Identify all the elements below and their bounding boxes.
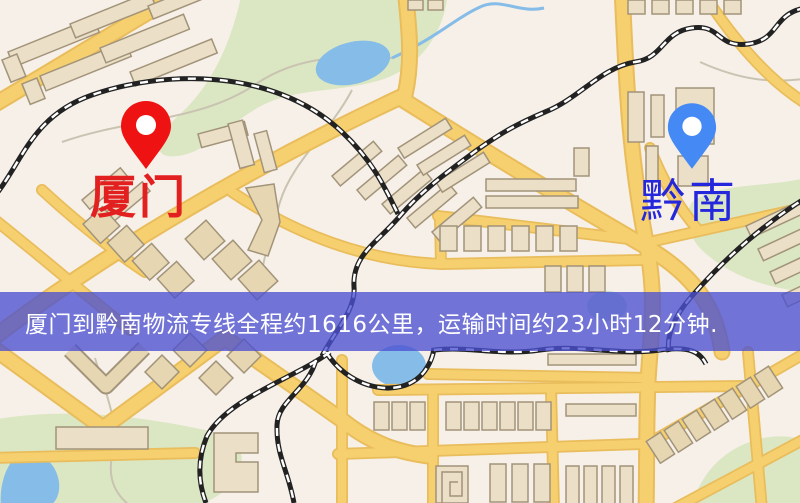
map-pin-icon	[665, 101, 719, 171]
map-canvas	[0, 0, 800, 503]
origin-city-label: 厦门	[90, 174, 188, 220]
map-pin-icon	[118, 99, 174, 171]
destination-city-label: 黔南	[640, 178, 738, 224]
route-info-text: 厦门到黔南物流专线全程约1616公里，运输时间约23小时12分钟.	[25, 305, 718, 339]
route-info-banner: 厦门到黔南物流专线全程约1616公里，运输时间约23小时12分钟.	[0, 292, 800, 351]
marker-destination-qiannan[interactable]	[665, 101, 719, 175]
logistics-route-map: 厦门 黔南 厦门到黔南物流专线全程约1616公里，运输时间约23小时12分钟.	[0, 0, 800, 503]
marker-origin-xiamen[interactable]	[118, 99, 174, 175]
